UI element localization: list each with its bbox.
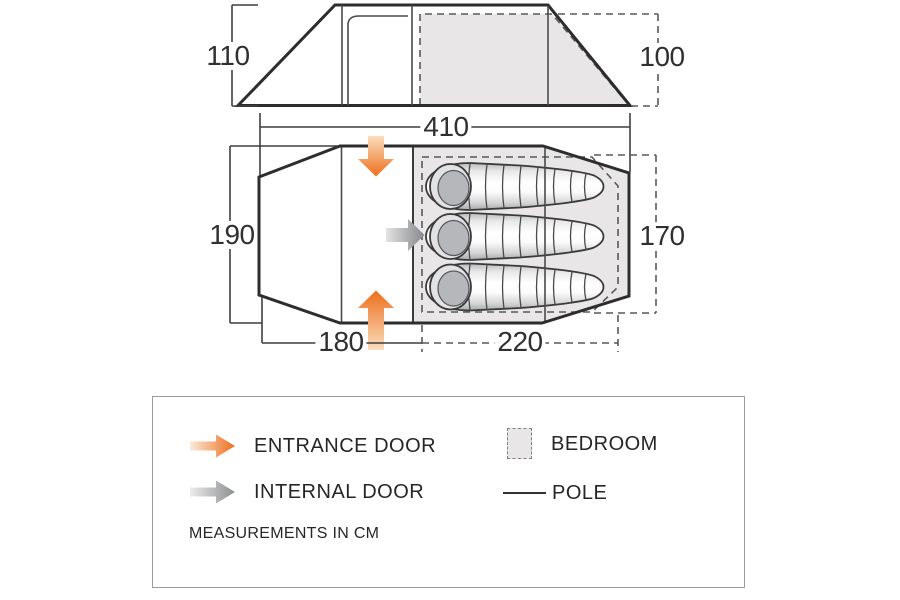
entrance-door-label: ENTRANCE DOOR xyxy=(254,436,436,456)
dim-410-label: 410 xyxy=(420,113,471,141)
side-door-outline xyxy=(348,16,408,105)
sleeping-bag-pillow xyxy=(438,271,469,306)
dim-190-label: 190 xyxy=(206,221,257,249)
dim-110-label: 110 xyxy=(203,42,252,70)
dim-220-label: 220 xyxy=(494,328,545,356)
legend-internal-door: INTERNAL DOOR xyxy=(190,479,424,505)
tent-diagram-canvas xyxy=(0,0,900,396)
dim-170-label: 170 xyxy=(636,222,687,250)
legend: ENTRANCE DOOR INTERNAL DOOR BEDROOM POLE… xyxy=(152,396,745,588)
pole-line-icon xyxy=(503,492,546,494)
entrance-door-arrow-icon xyxy=(190,433,236,459)
dim-100-label: 100 xyxy=(636,43,687,71)
legend-pole: POLE xyxy=(503,483,607,503)
sleeping-bag-pillow xyxy=(438,171,469,206)
legend-bedroom: BEDROOM xyxy=(507,428,658,459)
legend-entrance-door: ENTRANCE DOOR xyxy=(190,433,436,459)
dim-180-label: 180 xyxy=(315,328,366,356)
bedroom-swatch-icon xyxy=(507,428,532,459)
sleeping-bag-pillow xyxy=(438,221,469,256)
pole-label: POLE xyxy=(552,483,607,503)
internal-door-arrow-icon xyxy=(190,479,236,505)
tent-floor-plan xyxy=(230,136,656,352)
tent-dimension-diagram: 110 100 410 190 170 180 220 ENTRANCE DOO… xyxy=(0,0,900,600)
tent-side-view xyxy=(232,5,658,106)
measurements-note: MEASUREMENTS IN CM xyxy=(189,525,379,543)
side-bedroom-area xyxy=(420,14,629,105)
internal-door-label: INTERNAL DOOR xyxy=(254,482,424,502)
bedroom-label: BEDROOM xyxy=(551,434,658,454)
